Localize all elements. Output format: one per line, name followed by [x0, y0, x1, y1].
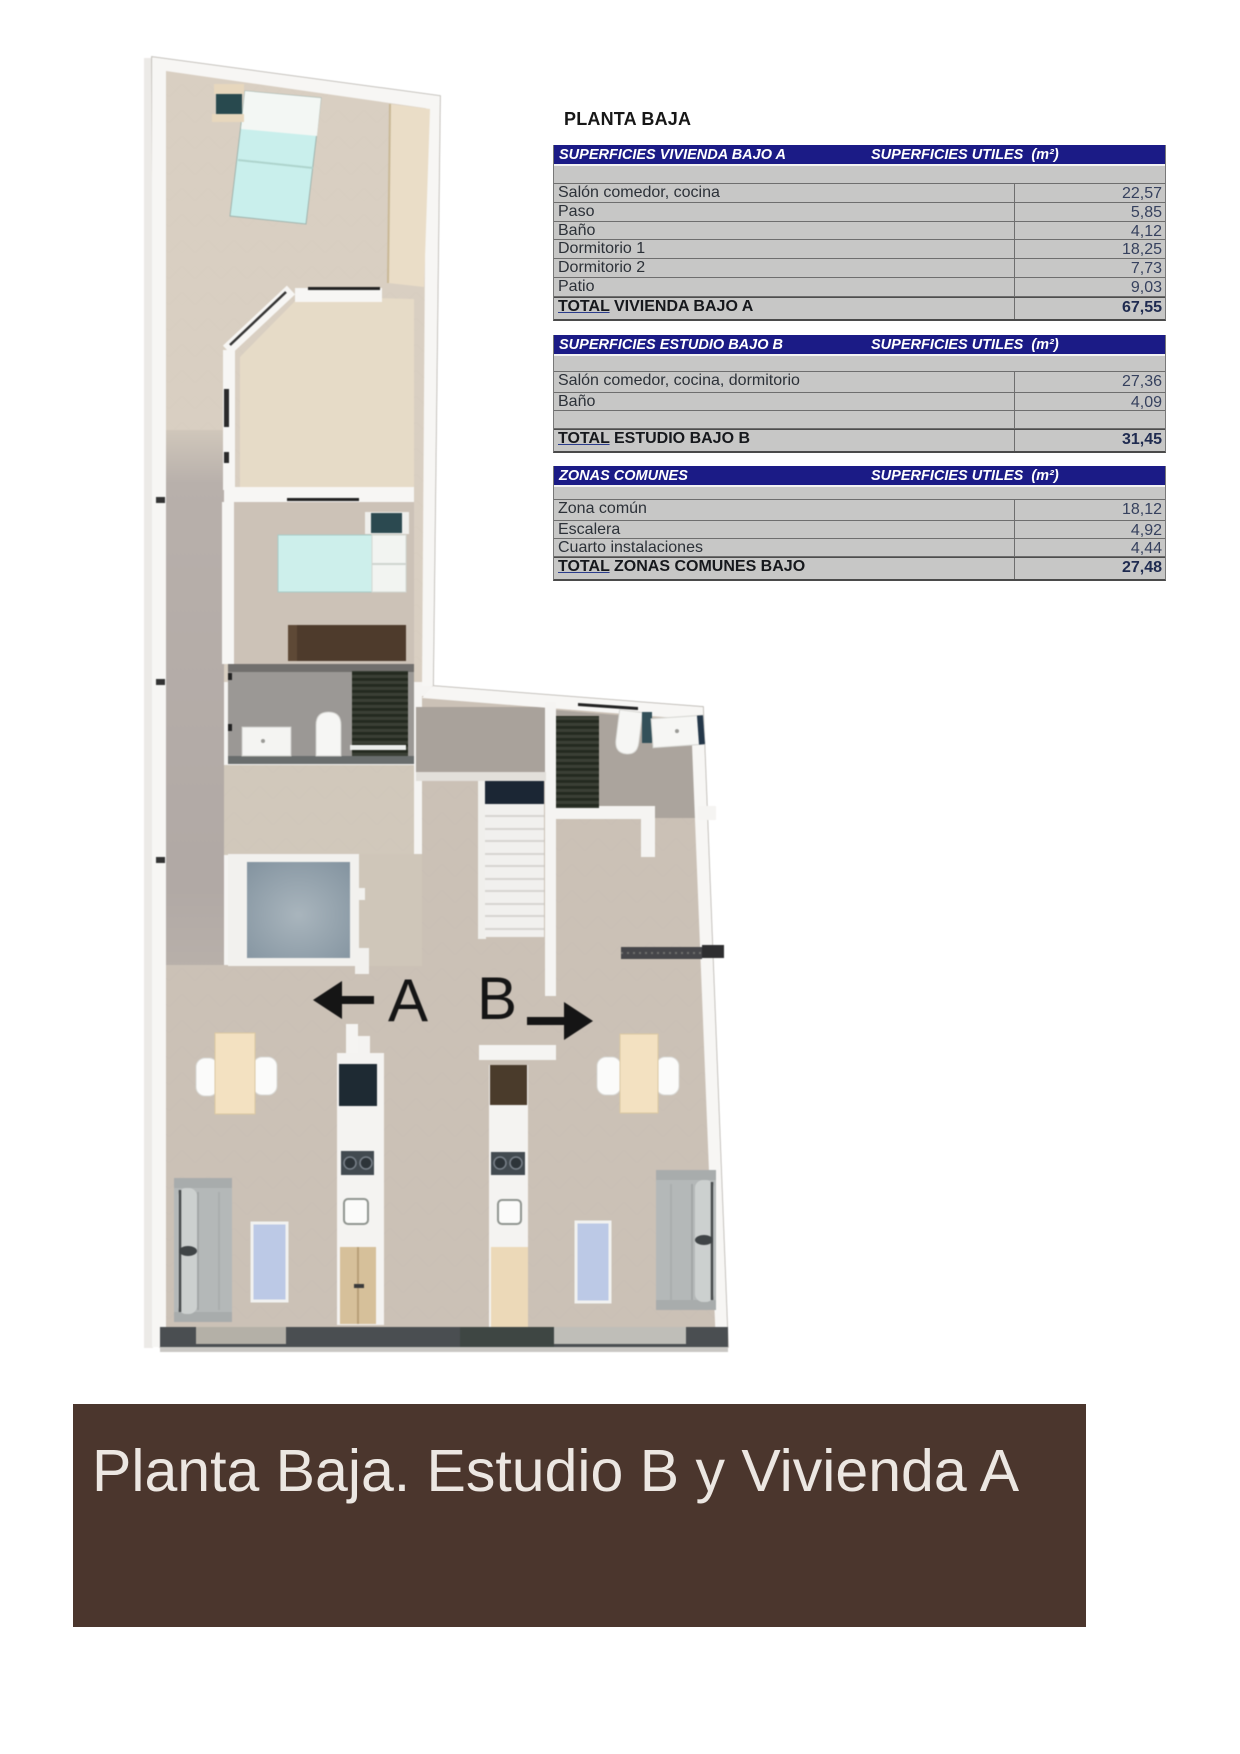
svg-text:B: B: [477, 965, 517, 1032]
svg-text:A: A: [388, 967, 428, 1034]
